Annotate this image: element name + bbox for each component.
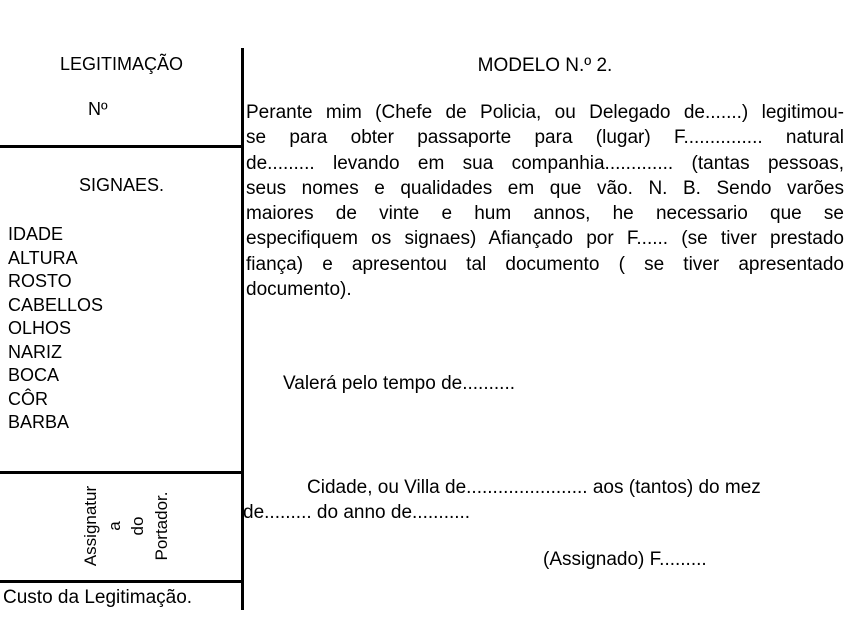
main-paragraph: Perante mim (Chefe de Policia, ou Delega… — [246, 100, 844, 302]
signed-line: (Assignado) F......... — [543, 549, 707, 571]
feature-item-cor: CÔR — [8, 388, 103, 412]
place-date-line-2: de......... do anno de........... — [243, 500, 849, 525]
paragraph-line-1: Perante mim (Chefe de Policia, ou Delega… — [246, 100, 844, 125]
feature-item-rosto: ROSTO — [8, 270, 103, 294]
bearer-signature-line-1: Assignatur — [79, 474, 103, 578]
document-page: LEGITIMAÇÃO Nº SIGNAES. IDADE ALTURA ROS… — [0, 0, 852, 629]
paragraph-line-4: seus nomes e qualidades em que vão. N. B… — [246, 176, 844, 201]
place-date-line-1: Cidade, ou Villa de.....................… — [243, 475, 849, 500]
bearer-signature-line-4: Portador. — [150, 474, 174, 578]
bearer-signature-line-3: do — [126, 474, 150, 578]
feature-item-boca: BOCA — [8, 364, 103, 388]
feature-item-nariz: NARIZ — [8, 341, 103, 365]
place-date-block: Cidade, ou Villa de.....................… — [243, 475, 849, 526]
feature-item-barba: BARBA — [8, 411, 103, 435]
left-panel-divider-1 — [0, 145, 243, 148]
paragraph-line-8: documento). — [246, 277, 844, 302]
bearer-signature-line-2: a — [103, 474, 127, 578]
validity-line: Valerá pelo tempo de.......... — [283, 373, 515, 395]
paragraph-line-5: maiores de vinte e hum annos, he necessa… — [246, 201, 844, 226]
legitimacao-title: LEGITIMAÇÃO — [0, 54, 243, 75]
paragraph-line-7: fiança) e apresentou tal documento ( se … — [246, 252, 844, 277]
vertical-divider — [241, 48, 244, 610]
feature-item-olhos: OLHOS — [8, 317, 103, 341]
paragraph-line-2: se para obter passaporte para (lugar) F.… — [246, 125, 844, 150]
bearer-signature-rotated-label: Assignatur a do Portador. — [79, 474, 173, 578]
feature-item-altura: ALTURA — [8, 247, 103, 271]
number-label: Nº — [88, 99, 108, 120]
paragraph-line-3: de......... levando em sua companhia....… — [246, 151, 844, 176]
paragraph-line-6: especifiquem os signaes) Afiançado por F… — [246, 226, 844, 251]
cost-label: Custo da Legitimação. — [3, 587, 192, 609]
modelo-heading: MODELO N.º 2. — [246, 55, 844, 77]
feature-item-cabellos: CABELLOS — [8, 294, 103, 318]
feature-item-idade: IDADE — [8, 223, 103, 247]
features-list: IDADE ALTURA ROSTO CABELLOS OLHOS NARIZ … — [8, 223, 103, 435]
signaes-heading: SIGNAES. — [0, 175, 243, 196]
left-panel-divider-3 — [0, 580, 243, 583]
